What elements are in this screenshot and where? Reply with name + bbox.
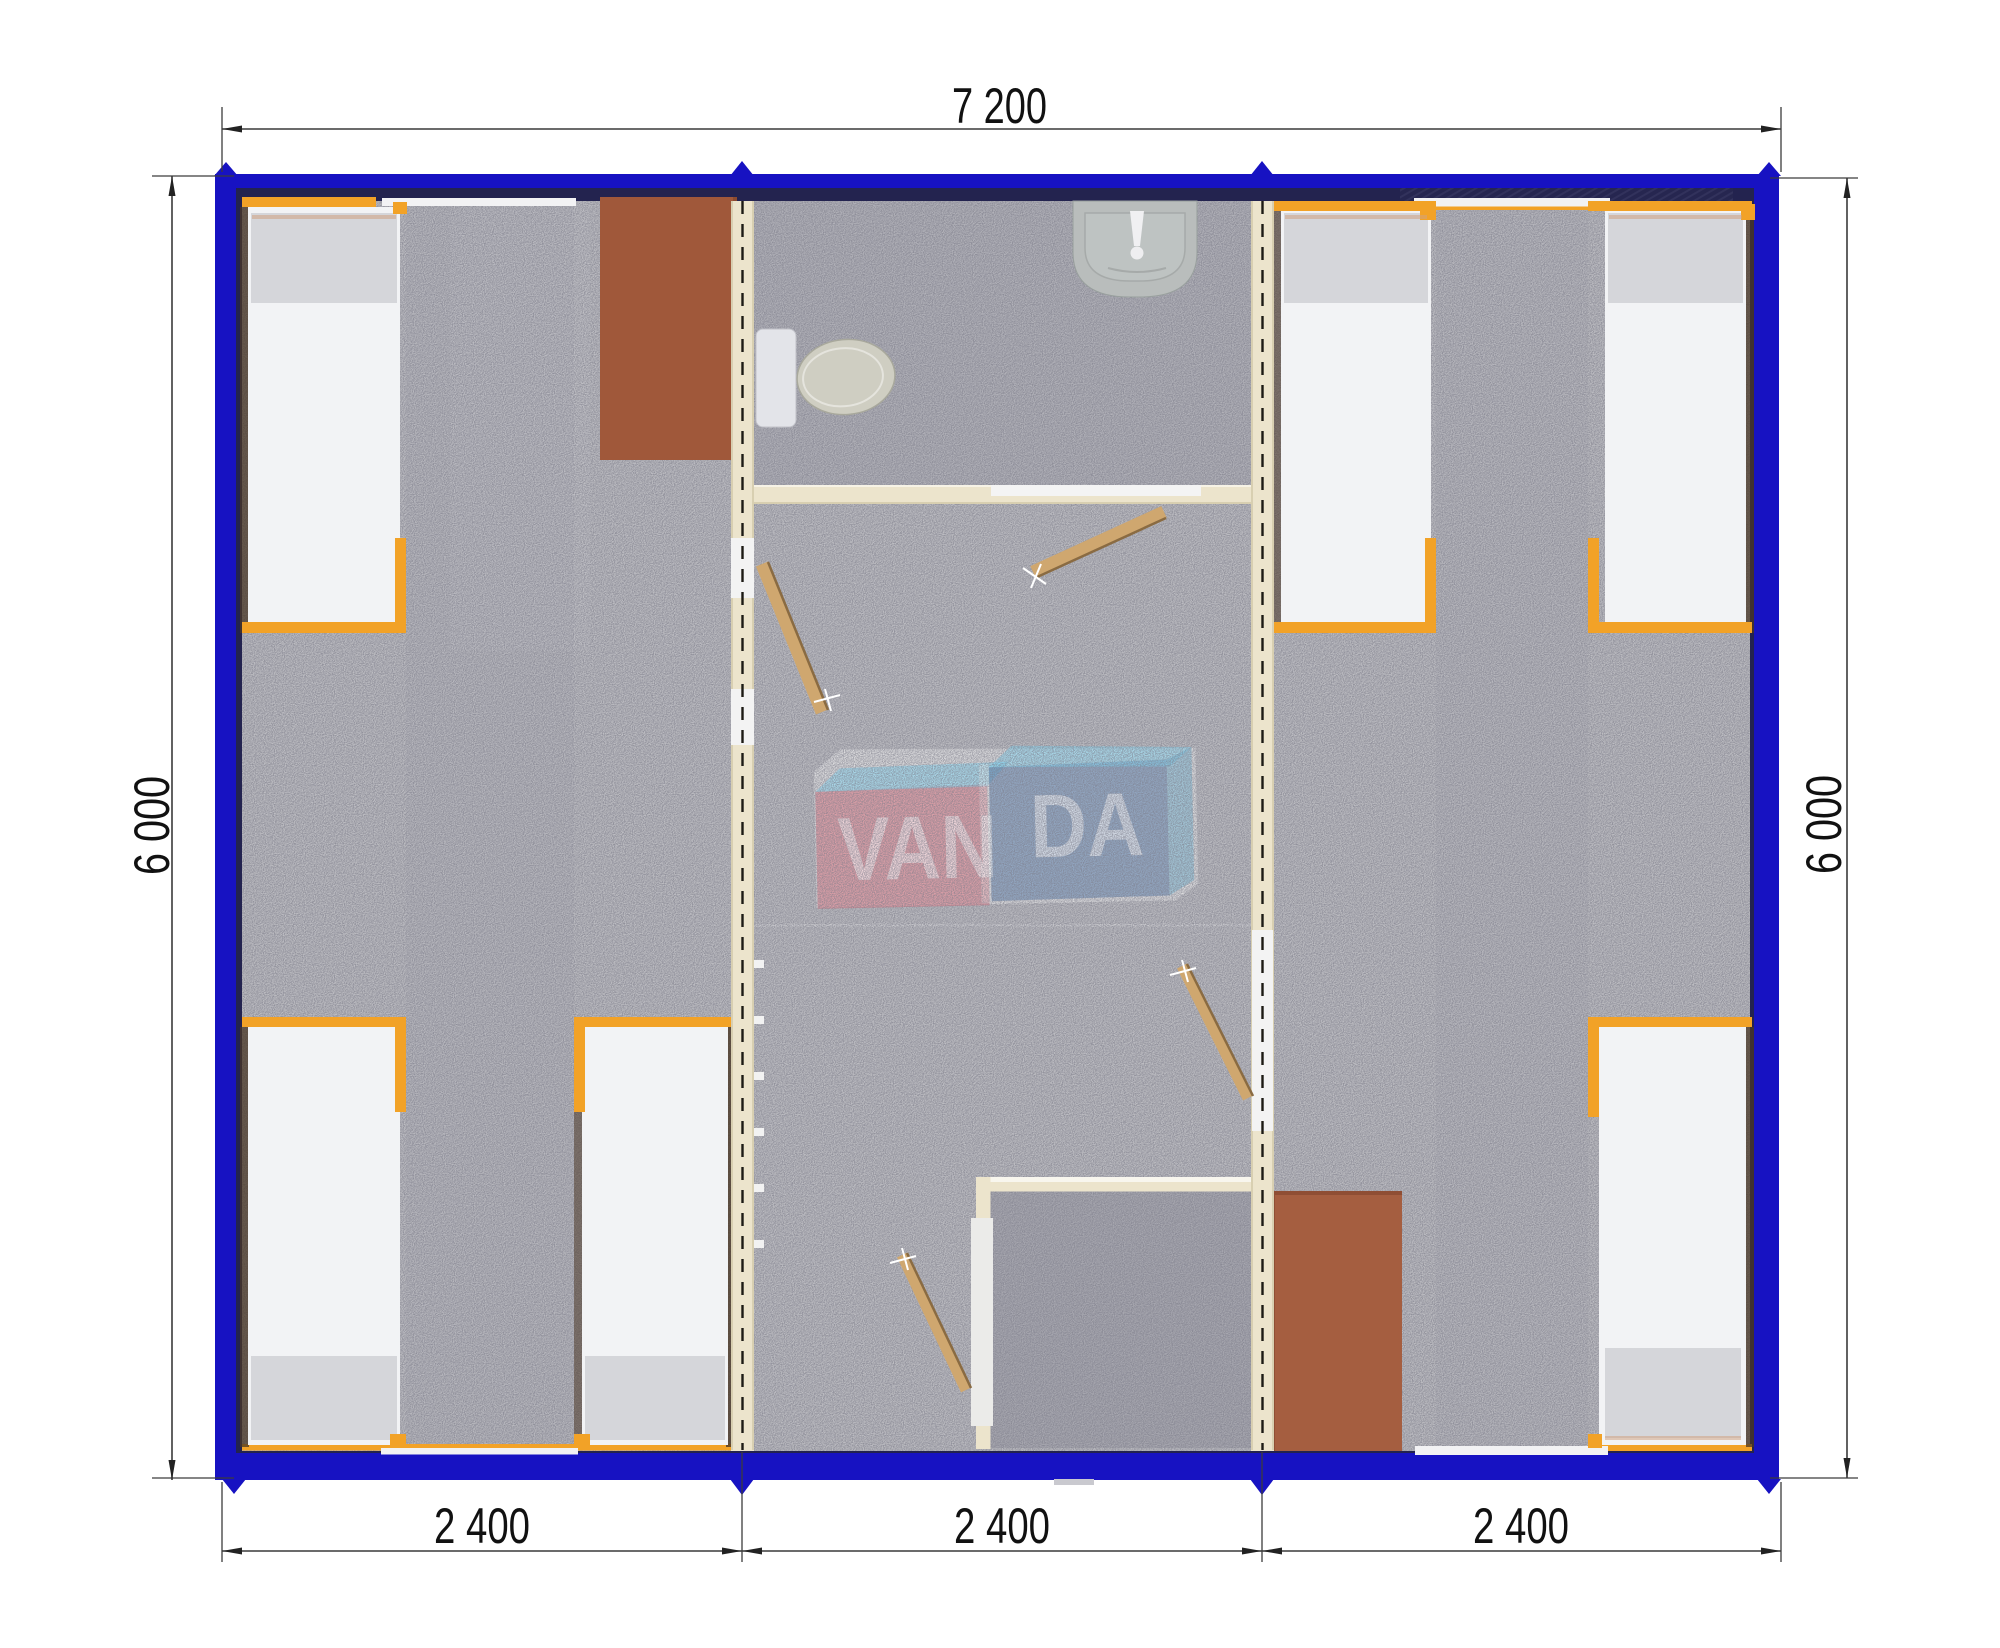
svg-text:6 000: 6 000 (1796, 775, 1852, 874)
svg-text:2 400: 2 400 (434, 1498, 530, 1554)
svg-text:7 200: 7 200 (952, 78, 1047, 134)
svg-text:2 400: 2 400 (1473, 1498, 1569, 1554)
svg-text:6 000: 6 000 (124, 776, 180, 875)
svg-text:2 400: 2 400 (954, 1498, 1050, 1554)
